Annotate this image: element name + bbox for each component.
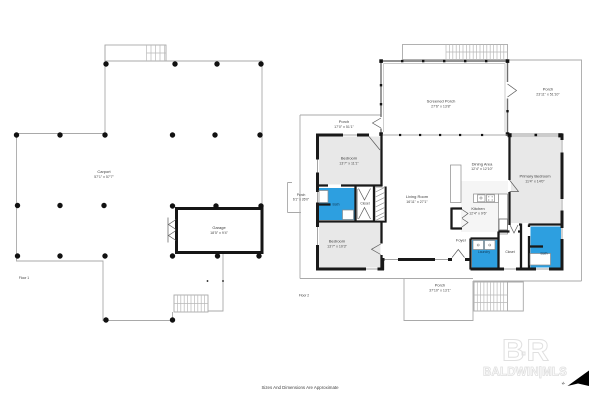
svg-text:Garage: Garage (212, 225, 226, 230)
svg-text:13'7" x 11'1": 13'7" x 11'1" (339, 162, 359, 166)
svg-text:Bath: Bath (333, 203, 340, 207)
svg-text:6'1" x 26'0": 6'1" x 26'0" (293, 198, 310, 202)
svg-text:13'7" x 10'3": 13'7" x 10'3" (327, 245, 347, 249)
svg-text:Porch: Porch (297, 193, 306, 197)
svg-text:Floor 2: Floor 2 (299, 294, 309, 298)
svg-text:Kitchen: Kitchen (471, 206, 484, 211)
svg-text:16'11" x 27'1": 16'11" x 27'1" (406, 200, 428, 204)
svg-text:11'4" x 14'0": 11'4" x 14'0" (525, 180, 545, 184)
svg-text:17'0" x 51'1": 17'0" x 51'1" (334, 125, 354, 129)
svg-text:Bedroom: Bedroom (341, 156, 358, 161)
svg-text:12'4" x 9'6": 12'4" x 9'6" (469, 212, 487, 216)
svg-text:Dining Area: Dining Area (472, 162, 493, 167)
svg-text:37'10" x 13'1": 37'10" x 13'1" (429, 289, 451, 293)
svg-text:Closet: Closet (505, 250, 514, 254)
svg-text:Living Room: Living Room (406, 194, 429, 199)
svg-text:Laundry: Laundry (478, 250, 491, 254)
svg-text:Floor 1: Floor 1 (19, 276, 29, 280)
svg-text:Primary Bedroom: Primary Bedroom (519, 174, 551, 179)
svg-text:Foyer: Foyer (456, 238, 467, 243)
svg-text:B: B (502, 333, 524, 368)
svg-text:18'5" x 9'4": 18'5" x 9'4" (210, 231, 228, 235)
svg-text:Bedroom: Bedroom (329, 239, 346, 244)
svg-text:Carport: Carport (97, 169, 111, 174)
svg-text:Bath: Bath (541, 252, 548, 256)
svg-text:Sizes And Dimensions Are Appro: Sizes And Dimensions Are Approximate (261, 385, 339, 390)
svg-text:Porch: Porch (339, 119, 349, 124)
svg-text:23'11" x 51'10": 23'11" x 51'10" (536, 93, 560, 97)
svg-text:Closet: Closet (360, 202, 369, 206)
svg-text:27'6" x 13'8": 27'6" x 13'8" (431, 105, 451, 109)
svg-text:Screened Porch: Screened Porch (427, 99, 456, 104)
svg-text:BALDWIN|MLS: BALDWIN|MLS (483, 367, 567, 379)
svg-text:57'1" x 57'7": 57'1" x 57'7" (94, 175, 114, 179)
svg-text:Porch: Porch (543, 87, 553, 92)
svg-text:R: R (527, 333, 549, 368)
svg-text:Porch: Porch (435, 283, 445, 288)
svg-text:12'4" x 12'10": 12'4" x 12'10" (471, 167, 493, 171)
